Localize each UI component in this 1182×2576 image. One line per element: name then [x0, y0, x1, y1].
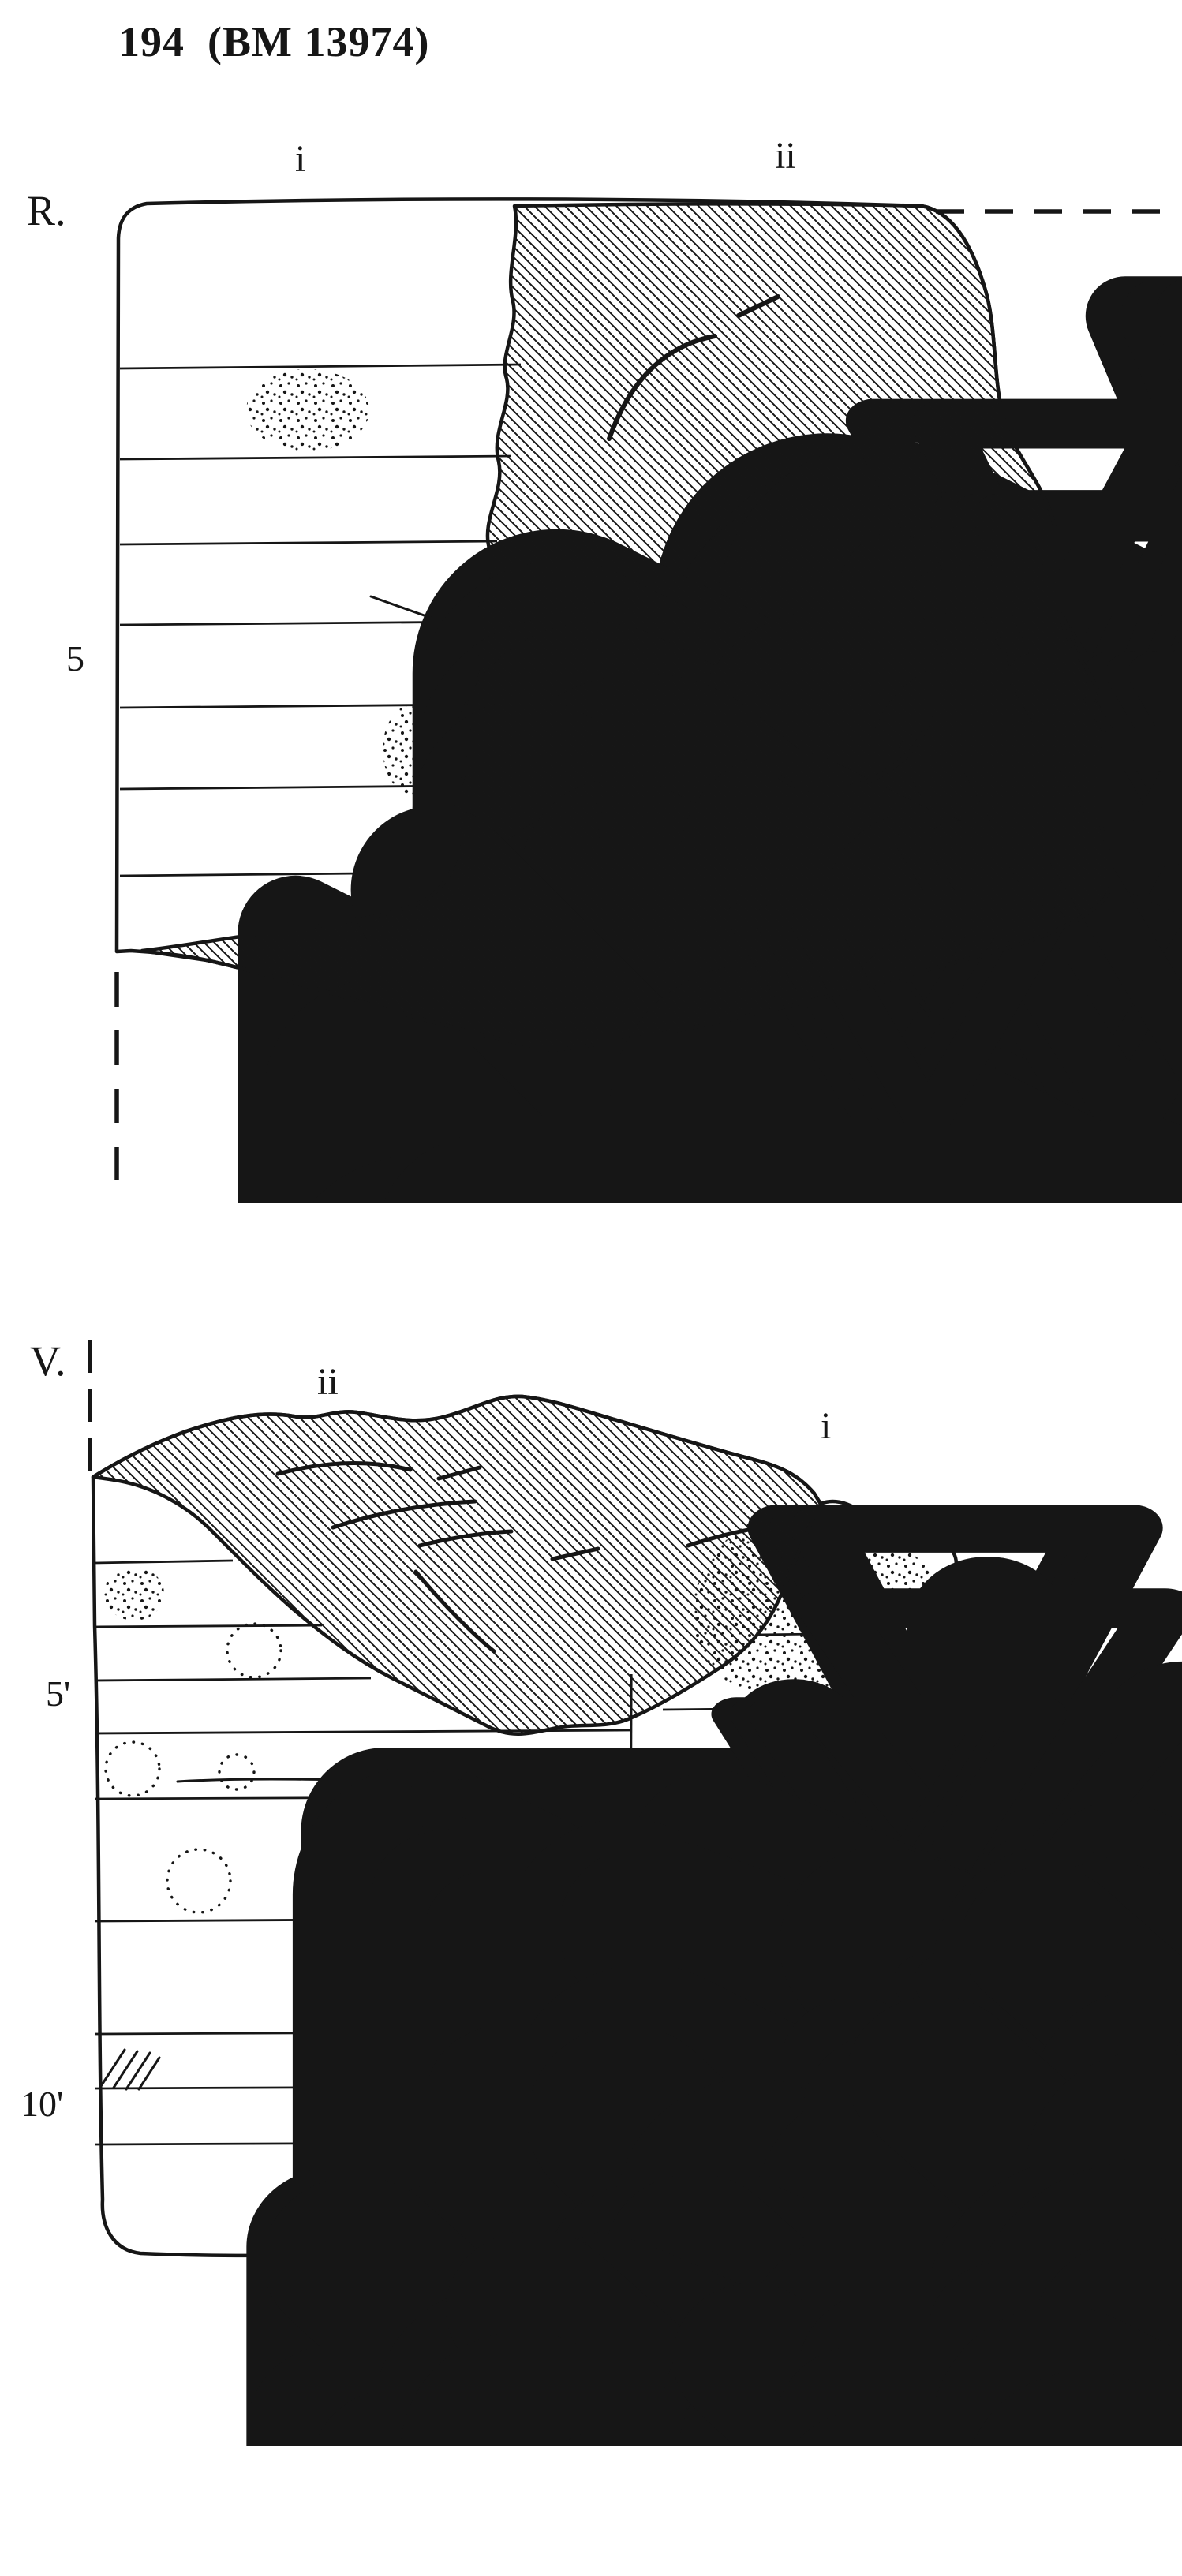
verso-tablet-drawing: [0, 1325, 1182, 2446]
plate-page: 194 (BM 13974) R. i ii 5 V. ii i 5' 10' …: [0, 0, 1182, 2576]
recto-tablet-drawing: [0, 146, 1182, 1203]
plate-title: 194 (BM 13974): [118, 21, 429, 63]
